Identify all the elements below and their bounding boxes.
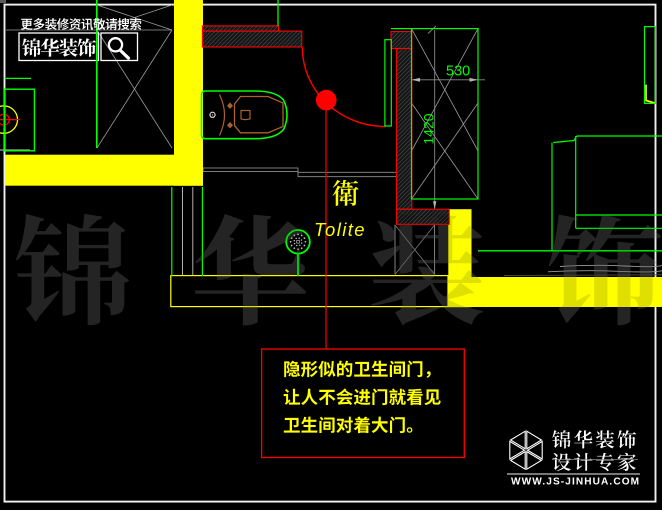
- svg-text:WWW.JS-JINHUA.COM: WWW.JS-JINHUA.COM: [511, 477, 640, 488]
- svg-text:1420: 1420: [421, 113, 437, 144]
- svg-text:Tolite: Tolite: [314, 219, 366, 240]
- svg-text:530: 530: [446, 64, 470, 80]
